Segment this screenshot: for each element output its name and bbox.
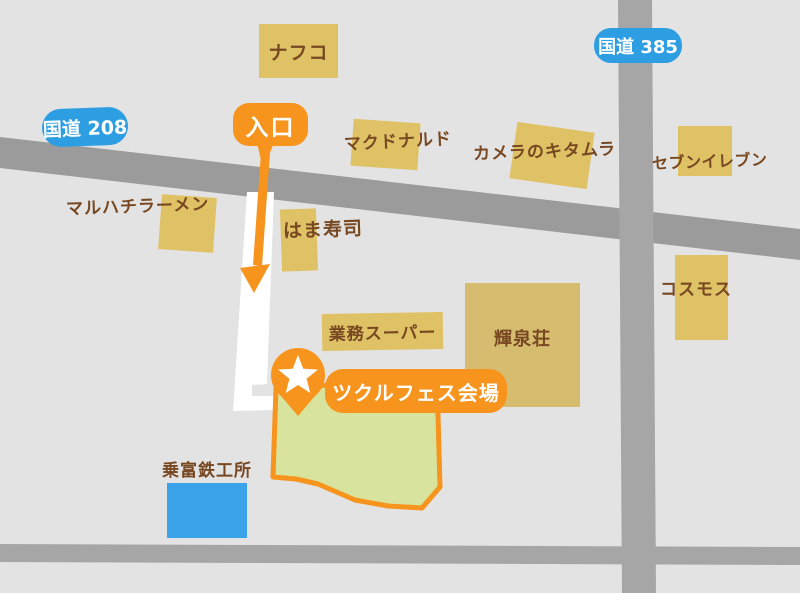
entrance-arrow-icon	[240, 143, 274, 293]
markers-layer	[0, 0, 800, 593]
star-pin-icon	[271, 348, 325, 416]
event-access-map: ナフコ 業務スーパー 輝泉荘 マクドナルド カメラのキタムラ セブンイレブン マ…	[0, 0, 800, 593]
